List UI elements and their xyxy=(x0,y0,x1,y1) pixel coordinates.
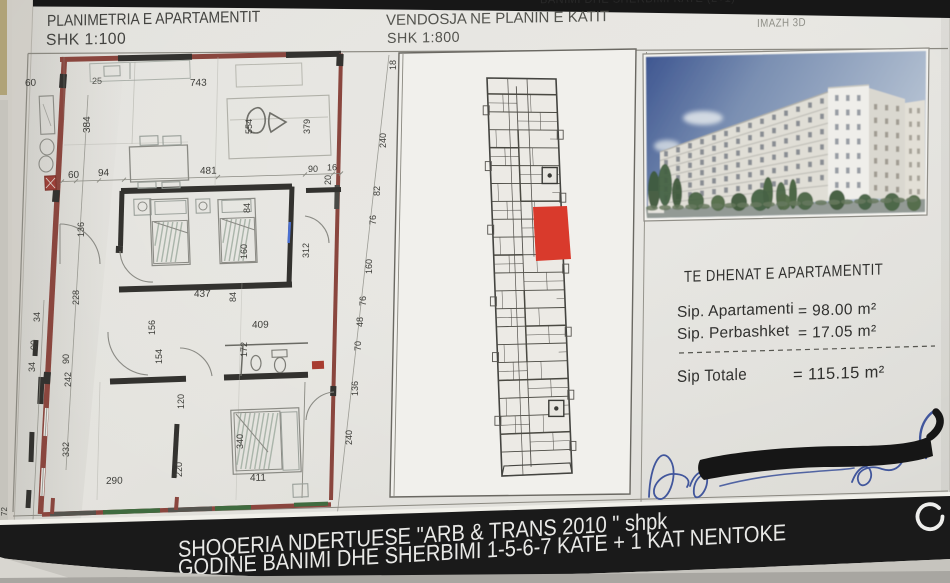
svg-text:70: 70 xyxy=(353,341,363,351)
svg-text:Sip Totale: Sip Totale xyxy=(677,366,747,386)
svg-text:90: 90 xyxy=(308,164,318,174)
svg-text:= 17.05 m²: = 17.05 m² xyxy=(798,323,877,342)
svg-text:290: 290 xyxy=(106,476,123,487)
svg-text:160: 160 xyxy=(364,259,374,274)
svg-text:409: 409 xyxy=(252,320,269,331)
svg-text:60: 60 xyxy=(68,170,80,181)
svg-text:411: 411 xyxy=(250,473,266,484)
svg-text:82: 82 xyxy=(372,186,382,196)
svg-text:156: 156 xyxy=(147,320,157,335)
svg-text:242: 242 xyxy=(63,372,73,387)
svg-text:481: 481 xyxy=(200,166,217,177)
svg-text:IMAZH 3D: IMAZH 3D xyxy=(757,16,806,30)
svg-text:340: 340 xyxy=(235,434,245,449)
svg-text:160: 160 xyxy=(239,244,249,259)
svg-text:240: 240 xyxy=(378,133,388,148)
svg-text:220: 220 xyxy=(174,462,184,477)
svg-text:554: 554 xyxy=(244,119,254,134)
svg-text:84: 84 xyxy=(242,203,252,213)
svg-text:25: 25 xyxy=(92,76,102,86)
svg-text:384: 384 xyxy=(82,116,93,133)
svg-text:312: 312 xyxy=(301,243,311,258)
svg-text:76: 76 xyxy=(368,215,378,225)
svg-text:136: 136 xyxy=(350,381,360,396)
svg-text:332: 332 xyxy=(61,442,71,457)
svg-text:172: 172 xyxy=(239,342,249,357)
svg-text:84: 84 xyxy=(228,292,238,302)
svg-text:= 115.15 m²: = 115.15 m² xyxy=(793,363,885,384)
svg-text:240: 240 xyxy=(344,430,354,445)
svg-text:90: 90 xyxy=(61,354,71,364)
svg-text:Sip. Perbashket: Sip. Perbashket xyxy=(677,322,790,343)
svg-text:90: 90 xyxy=(29,340,39,350)
svg-text:228: 228 xyxy=(71,290,81,305)
svg-text:72: 72 xyxy=(0,507,9,516)
svg-text:94: 94 xyxy=(98,168,110,179)
svg-text:34: 34 xyxy=(32,312,42,322)
svg-text:= 98.00 m²: = 98.00 m² xyxy=(798,301,877,320)
svg-text:SHK 1:800: SHK 1:800 xyxy=(387,30,460,47)
svg-text:34: 34 xyxy=(27,362,37,372)
svg-text:120: 120 xyxy=(176,394,186,409)
svg-text:20: 20 xyxy=(323,175,333,185)
svg-text:SHK 1:100: SHK 1:100 xyxy=(46,30,126,49)
svg-text:76: 76 xyxy=(358,296,368,306)
svg-text:16: 16 xyxy=(327,162,337,172)
svg-text:18: 18 xyxy=(388,60,398,70)
svg-text:60: 60 xyxy=(25,78,37,89)
svg-text:379: 379 xyxy=(302,119,312,134)
svg-text:48: 48 xyxy=(355,317,365,327)
svg-text:154: 154 xyxy=(154,349,164,364)
svg-text:437: 437 xyxy=(194,289,211,300)
svg-text:136: 136 xyxy=(76,222,86,237)
svg-text:743: 743 xyxy=(190,78,207,89)
